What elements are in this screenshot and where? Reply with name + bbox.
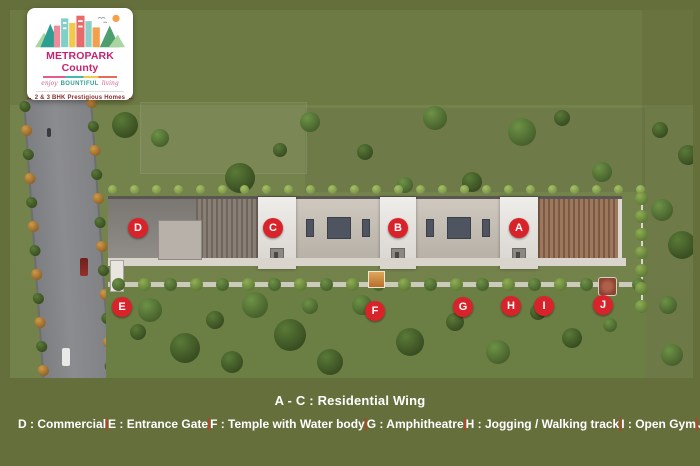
tree bbox=[678, 145, 693, 165]
tree bbox=[486, 340, 510, 364]
tree bbox=[398, 278, 411, 291]
tagline-word: BOUNTIFUL bbox=[61, 81, 99, 87]
temple-structure bbox=[368, 271, 385, 288]
louver-roof-section bbox=[538, 199, 618, 258]
tree bbox=[108, 185, 117, 194]
tree bbox=[92, 193, 104, 204]
tree bbox=[580, 278, 593, 291]
tree bbox=[206, 311, 224, 329]
skylight bbox=[447, 217, 471, 239]
skylight bbox=[426, 219, 434, 237]
marker-h: H bbox=[501, 296, 521, 316]
brand-tagline: enjoy BOUNTIFUL living bbox=[27, 80, 133, 87]
tree bbox=[37, 365, 49, 376]
tree bbox=[396, 328, 424, 356]
tree bbox=[27, 221, 39, 232]
tree bbox=[592, 185, 601, 194]
tree bbox=[20, 125, 32, 136]
marker-b: B bbox=[388, 218, 408, 238]
tagline-word: living bbox=[102, 80, 119, 87]
car bbox=[62, 348, 70, 366]
tree bbox=[87, 121, 99, 132]
tree bbox=[151, 129, 169, 147]
legend-item: G : Amphitheatre bbox=[367, 417, 464, 431]
tree bbox=[32, 293, 44, 304]
tree bbox=[438, 185, 447, 194]
motorbike bbox=[47, 128, 51, 137]
tree bbox=[651, 199, 673, 221]
tree bbox=[273, 143, 287, 157]
tree bbox=[570, 185, 579, 194]
tree bbox=[216, 278, 229, 291]
tree bbox=[34, 317, 46, 328]
city-skyline-illustration bbox=[34, 13, 126, 49]
tree bbox=[562, 328, 582, 348]
marker-g: G bbox=[453, 297, 473, 317]
tree bbox=[346, 278, 359, 291]
tree bbox=[190, 278, 203, 291]
tree bbox=[460, 185, 469, 194]
tree bbox=[328, 185, 337, 194]
tree bbox=[482, 185, 491, 194]
tree bbox=[97, 265, 109, 276]
tree bbox=[548, 185, 557, 194]
tree bbox=[526, 185, 535, 194]
commercial-annex bbox=[158, 220, 202, 260]
tree bbox=[302, 298, 318, 314]
tree bbox=[112, 278, 125, 291]
tree bbox=[424, 278, 437, 291]
tree bbox=[268, 278, 281, 291]
brand-subtitle: 2 & 3 BHK Prestigious Homes bbox=[27, 95, 133, 101]
tree bbox=[661, 344, 683, 366]
tree bbox=[502, 278, 515, 291]
tree bbox=[152, 185, 161, 194]
tree bbox=[614, 185, 623, 194]
tree bbox=[320, 278, 333, 291]
tagline-word: enjoy bbox=[41, 80, 57, 87]
tree bbox=[130, 324, 146, 340]
residential-roof-section bbox=[296, 199, 380, 258]
tree bbox=[196, 185, 205, 194]
brand-title: METROPARK County bbox=[27, 50, 133, 74]
marker-c: C bbox=[263, 218, 283, 238]
tree bbox=[95, 241, 107, 252]
tree bbox=[89, 145, 101, 156]
tree bbox=[94, 217, 106, 228]
tree bbox=[170, 333, 200, 363]
skylight bbox=[327, 217, 351, 239]
car bbox=[80, 258, 88, 276]
field-patch bbox=[642, 10, 693, 378]
tree bbox=[635, 192, 648, 205]
building-end-cap bbox=[618, 199, 622, 258]
tree bbox=[221, 351, 243, 373]
tree bbox=[317, 349, 343, 375]
tree bbox=[394, 185, 403, 194]
marker-d: D bbox=[128, 218, 148, 238]
legend: A - C : Residential Wing D : Commercial … bbox=[0, 378, 700, 466]
legend-item: H : Jogging / Walking track bbox=[466, 417, 620, 431]
legend-item: D : Commercial bbox=[18, 417, 106, 431]
tree bbox=[659, 296, 677, 314]
tree bbox=[668, 231, 693, 259]
tree bbox=[306, 185, 315, 194]
marker-i: I bbox=[534, 296, 554, 316]
marker-j: J bbox=[593, 295, 613, 315]
marker-e: E bbox=[112, 297, 132, 317]
legend-items-row: D : Commercial E : Entrance Gate F : Tem… bbox=[0, 417, 700, 431]
tree bbox=[242, 292, 268, 318]
tree bbox=[372, 185, 381, 194]
tree bbox=[240, 185, 249, 194]
tree bbox=[635, 264, 648, 277]
legend-item: I : Open Gym bbox=[621, 417, 696, 431]
tree bbox=[450, 278, 463, 291]
marker-f: F bbox=[365, 301, 385, 321]
tree bbox=[24, 173, 36, 184]
tree bbox=[350, 185, 359, 194]
tree bbox=[262, 185, 271, 194]
tree bbox=[164, 278, 177, 291]
tree bbox=[528, 278, 541, 291]
tree bbox=[635, 282, 648, 295]
legend-item: E : Entrance Gate bbox=[108, 417, 208, 431]
tree bbox=[635, 246, 648, 259]
tree bbox=[357, 144, 373, 160]
tree bbox=[90, 169, 102, 180]
tree bbox=[22, 149, 34, 160]
tree bbox=[603, 318, 617, 332]
site-plan-page: A B C D E F G H I J METROPARK Count bbox=[0, 0, 700, 466]
brand-subtitle-text: 2 & 3 BHK Prestigious Homes bbox=[35, 95, 125, 101]
tree bbox=[138, 298, 162, 322]
tree bbox=[592, 162, 612, 182]
skylight bbox=[482, 219, 490, 237]
marker-a: A bbox=[509, 218, 529, 238]
tree bbox=[242, 278, 255, 291]
skylight bbox=[362, 219, 370, 237]
divider bbox=[36, 91, 124, 92]
tree bbox=[274, 319, 306, 351]
tree bbox=[635, 300, 648, 313]
tree bbox=[476, 278, 489, 291]
dash-line bbox=[129, 98, 133, 99]
road bbox=[23, 100, 111, 378]
tree bbox=[652, 122, 668, 138]
tree bbox=[112, 112, 138, 138]
tree bbox=[130, 185, 139, 194]
louver-roof-section bbox=[196, 199, 258, 258]
tree bbox=[29, 245, 41, 256]
tree bbox=[504, 185, 513, 194]
gazebo-structure bbox=[598, 277, 617, 296]
brand-logo-card: METROPARK County enjoy BOUNTIFUL living … bbox=[27, 8, 133, 100]
legend-residential: A - C : Residential Wing bbox=[0, 393, 700, 408]
tree bbox=[30, 269, 42, 280]
tree bbox=[635, 228, 648, 241]
tree bbox=[635, 210, 648, 223]
tree bbox=[554, 110, 570, 126]
tree bbox=[284, 185, 293, 194]
tree bbox=[423, 106, 447, 130]
tree bbox=[138, 278, 151, 291]
tree bbox=[508, 118, 536, 146]
tree bbox=[294, 278, 307, 291]
tree bbox=[554, 278, 567, 291]
tree bbox=[218, 185, 227, 194]
residential-roof-section bbox=[416, 199, 500, 258]
legend-item: F : Temple with Water body bbox=[210, 417, 365, 431]
tree bbox=[300, 112, 320, 132]
tree bbox=[174, 185, 183, 194]
tree bbox=[25, 197, 37, 208]
dash-line bbox=[27, 98, 31, 99]
tree bbox=[35, 341, 47, 352]
tree bbox=[416, 185, 425, 194]
brand-color-bar bbox=[43, 76, 117, 78]
skylight bbox=[306, 219, 314, 237]
tree bbox=[19, 101, 31, 112]
